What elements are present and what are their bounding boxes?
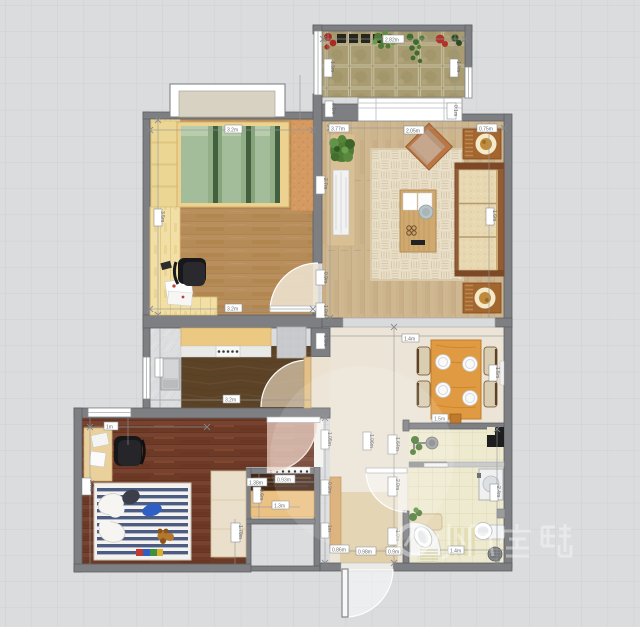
svg-text:1.4m: 1.4m	[450, 549, 461, 555]
svg-text:3.77m: 3.77m	[331, 127, 345, 133]
svg-text:0.98m: 0.98m	[358, 550, 372, 556]
svg-text:2.82m: 2.82m	[385, 38, 399, 44]
svg-text:3.2m: 3.2m	[227, 307, 238, 313]
svg-text:2.7m: 2.7m	[88, 480, 94, 491]
svg-text:1m: 1m	[106, 425, 113, 431]
svg-text:0.9m: 0.9m	[322, 272, 328, 283]
svg-text:1.6m: 1.6m	[491, 210, 497, 221]
svg-text:1.4m: 1.4m	[404, 337, 415, 343]
svg-text:0.1m: 0.1m	[330, 103, 336, 114]
svg-text:1.78m: 1.78m	[237, 525, 243, 539]
svg-text:3.2m: 3.2m	[227, 128, 238, 134]
svg-text:1.6m: 1.6m	[322, 335, 328, 346]
svg-text:2.7m: 2.7m	[322, 178, 328, 189]
svg-text:3.5m: 3.5m	[159, 211, 165, 222]
svg-text:2.05m: 2.05m	[406, 129, 420, 135]
svg-text:0.1m: 0.1m	[452, 105, 458, 116]
svg-text:1.5m: 1.5m	[329, 61, 335, 72]
svg-text:1.38m: 1.38m	[249, 481, 263, 487]
svg-text:0.6m: 0.6m	[258, 489, 264, 500]
svg-text:0.75m: 0.75m	[479, 127, 493, 133]
svg-text:3.2m: 3.2m	[225, 398, 236, 404]
svg-text:1.0m: 1.0m	[322, 305, 328, 316]
svg-text:0.86m: 0.86m	[332, 548, 346, 554]
svg-text:2.4m: 2.4m	[495, 486, 501, 497]
svg-text:1.4m: 1.4m	[455, 61, 461, 72]
svg-text:0.9m: 0.9m	[388, 550, 399, 556]
svg-text:1.5m: 1.5m	[494, 367, 500, 378]
